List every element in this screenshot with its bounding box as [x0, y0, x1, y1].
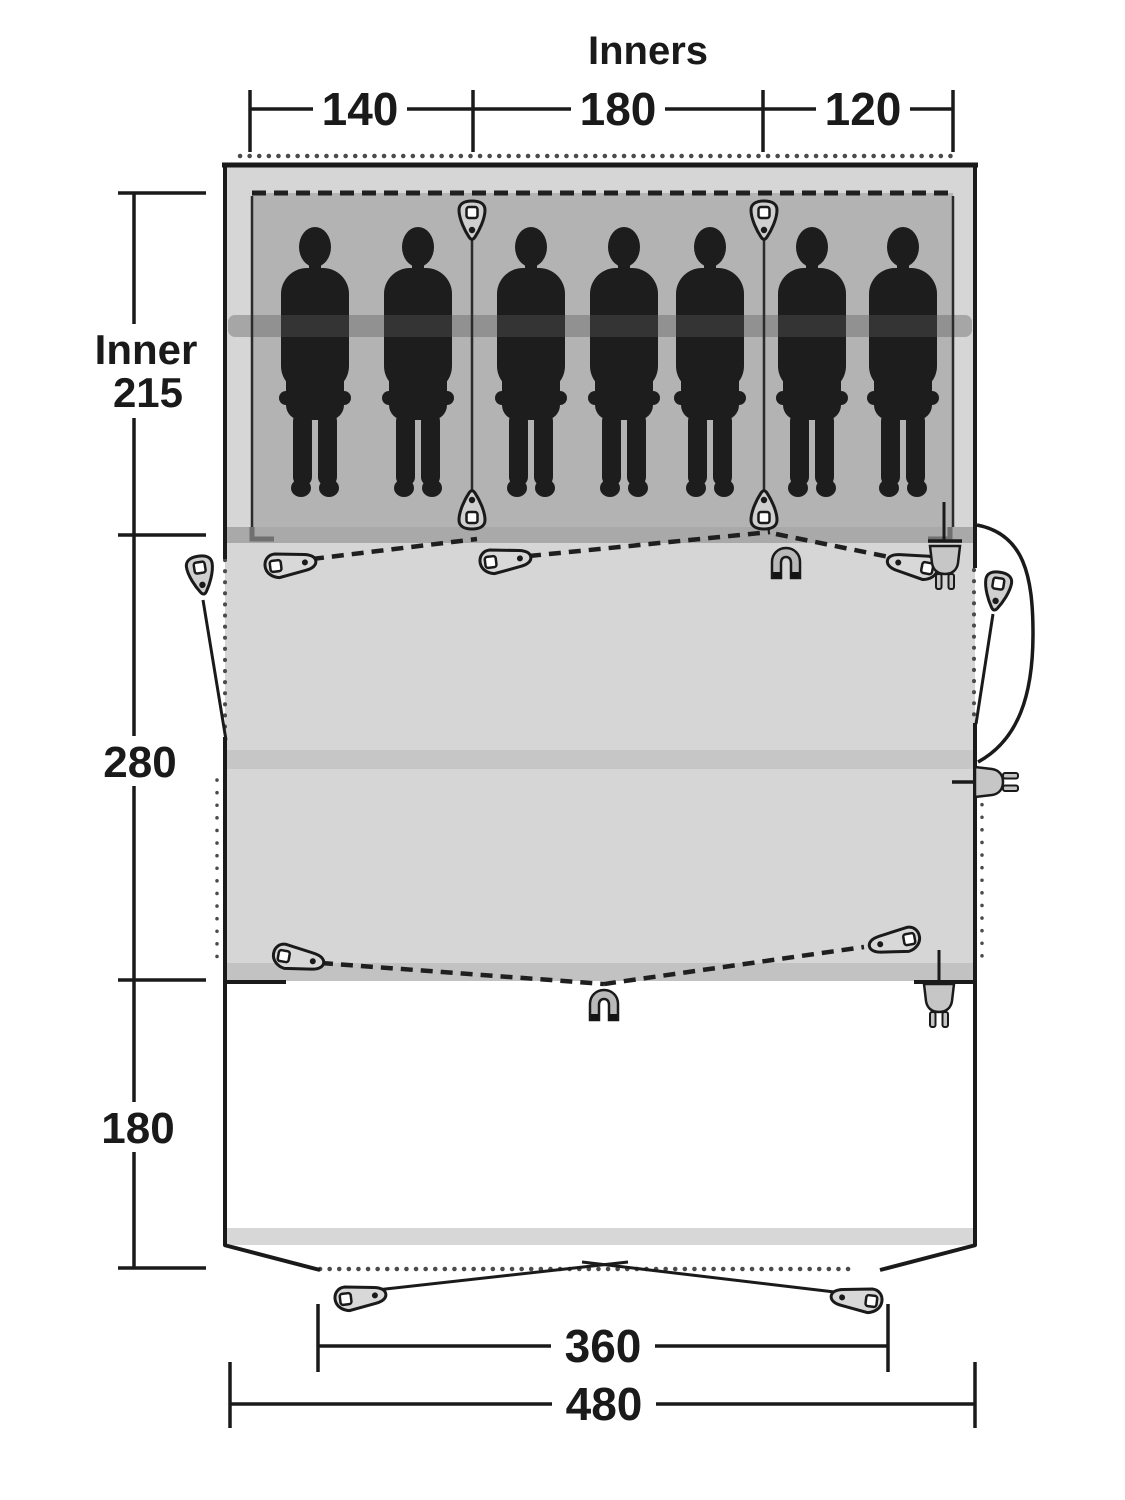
- sleeve-band-middle: [225, 750, 975, 769]
- dim-porch-depth: 180: [101, 1104, 174, 1153]
- dimension-top: Inners 140 180 120: [250, 29, 953, 152]
- tent-floorplan-svg: Inners 140 180 120 Inner 215 280 180 3: [0, 0, 1125, 1500]
- porch-guyline-left: [368, 1262, 628, 1291]
- porch-front-band: [225, 1228, 975, 1245]
- porch-guyline-right: [582, 1262, 843, 1293]
- power-plug-icon: [975, 767, 1018, 797]
- dim-inner-label: Inner: [95, 326, 198, 373]
- dim-living-depth: 280: [103, 738, 176, 787]
- dim-inner-width-1: 140: [322, 83, 399, 135]
- dim-inner-width-2: 180: [580, 83, 657, 135]
- dim-inner-width-3: 120: [825, 83, 902, 135]
- zipper-pull-icon: [334, 1282, 388, 1312]
- sleeve-band-lower: [225, 963, 975, 981]
- pole-band-overlay: [228, 315, 972, 337]
- dimension-left: Inner 215 280 180: [84, 193, 208, 1268]
- dim-front-width: 360: [565, 1320, 642, 1372]
- dim-total-width: 480: [566, 1378, 643, 1430]
- sleeve-band-rear: [225, 527, 975, 543]
- right-corner-guyline: [976, 614, 993, 724]
- left-corner-guyline: [203, 600, 226, 740]
- diagram-title: Inners: [588, 29, 708, 73]
- dim-inner-depth: 215: [113, 369, 183, 416]
- dimension-bottom: 360 480: [230, 1304, 975, 1430]
- zipper-pull-icon: [830, 1284, 884, 1314]
- cable-entry-loop: [977, 525, 1033, 762]
- zipper-pull-icon: [981, 570, 1013, 612]
- tent-floorplan-page: Inners 140 180 120 Inner 215 280 180 3: [0, 0, 1125, 1500]
- zipper-pull-icon: [185, 554, 217, 596]
- porch-corner-right: [880, 1245, 976, 1270]
- porch-corner-left: [224, 1245, 320, 1270]
